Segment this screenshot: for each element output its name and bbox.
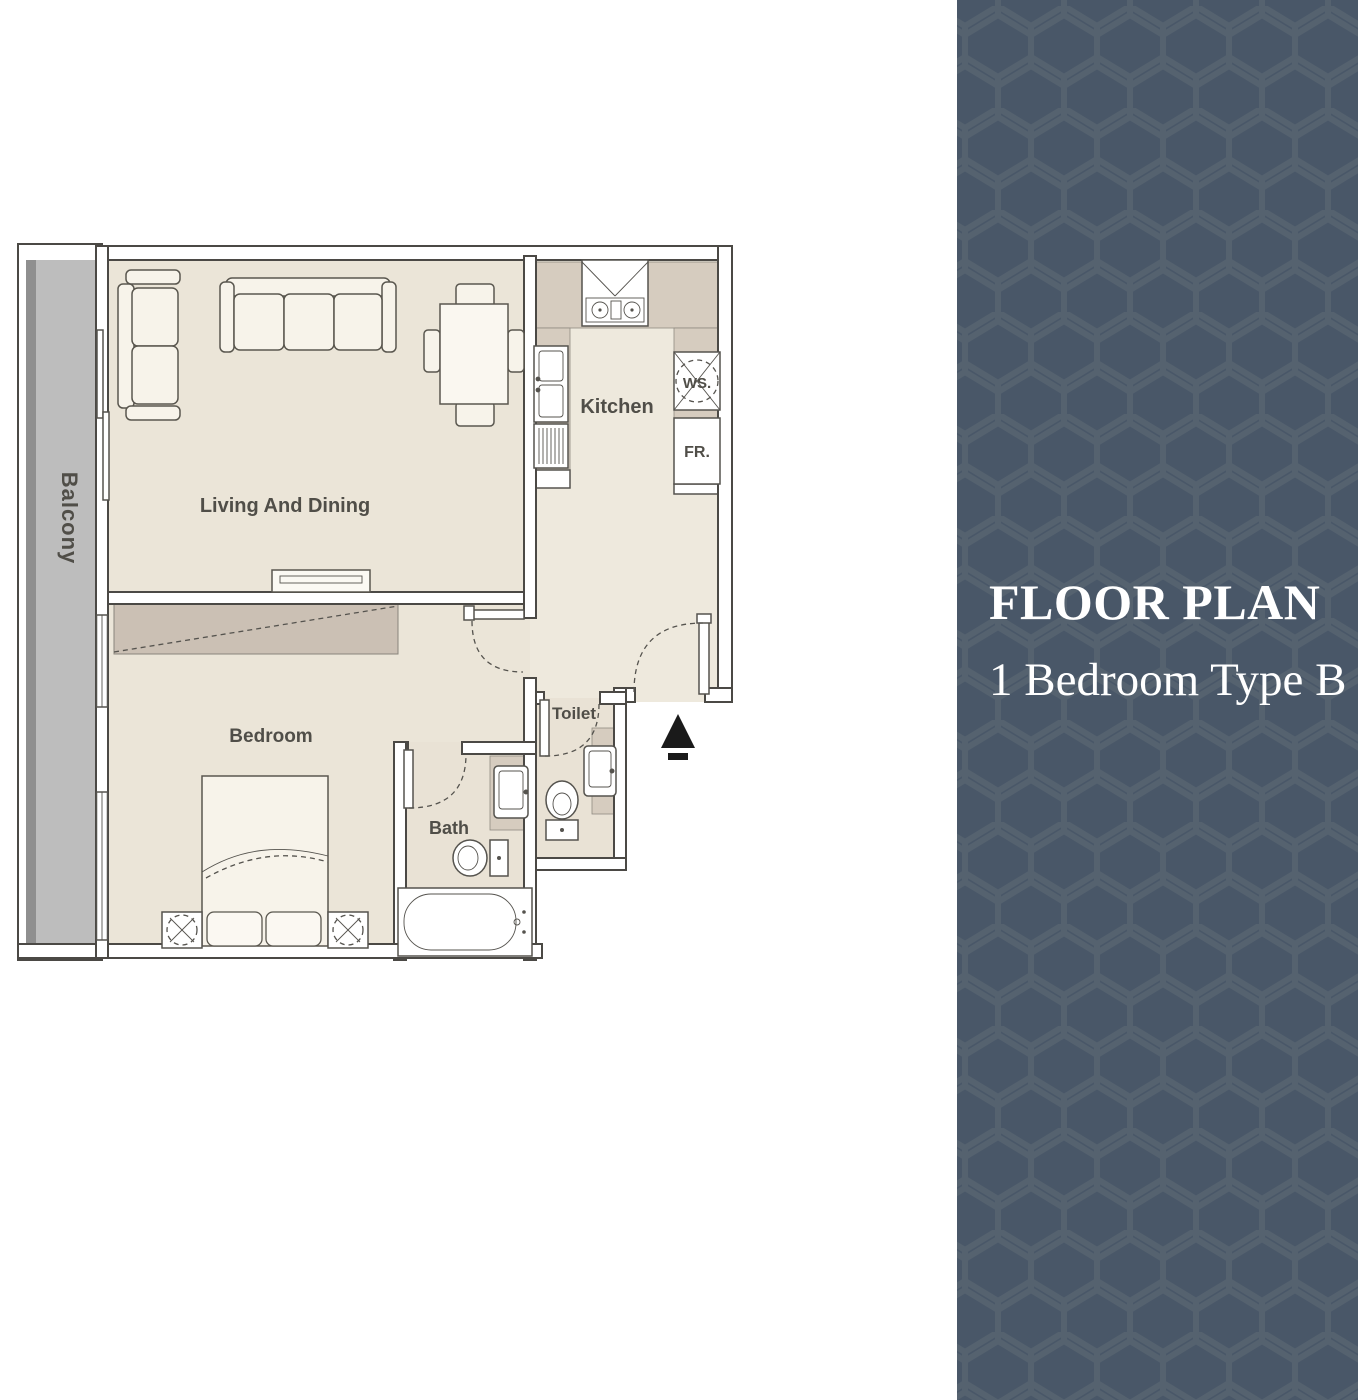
side-panel: FLOOR PLAN 1 Bedroom Type B: [957, 0, 1358, 1400]
sliding-door-panel: [103, 412, 109, 500]
floor-plan: WS. FR.: [0, 0, 957, 1400]
washing-machine: WS.: [674, 352, 720, 410]
washing-machine-label: WS.: [683, 375, 711, 392]
sofa-three-seat: [220, 278, 396, 352]
nightstand-lamp-left: [162, 912, 202, 948]
kitchen-stove: [582, 260, 648, 326]
toilet-wc: [546, 781, 578, 840]
page: WS. FR.: [0, 0, 1358, 1400]
bath-label: Bath: [429, 818, 469, 838]
wardrobe: [114, 604, 398, 654]
bath-toilet: [453, 840, 508, 876]
tv-console: [272, 570, 370, 592]
double-bed: [202, 776, 328, 946]
loveseat: [118, 270, 180, 420]
fridge: FR.: [674, 418, 720, 484]
bathtub: [398, 888, 532, 956]
bedroom-label: Bedroom: [229, 726, 312, 747]
kitchen-label: Kitchen: [580, 396, 653, 418]
nightstand-lamp-right: [328, 912, 368, 948]
sliding-door-panel: [97, 330, 103, 418]
kitchen-sink: [534, 346, 568, 422]
panel-title: FLOOR PLAN: [989, 576, 1349, 629]
entrance-marker: [661, 714, 695, 760]
panel-subtitle: 1 Bedroom Type B: [989, 656, 1358, 705]
living-dining-label: Living And Dining: [200, 495, 370, 517]
toilet-label: Toilet: [552, 704, 596, 723]
balcony-label: Balcony: [57, 472, 82, 565]
dish-rack: [534, 424, 568, 468]
toilet-sink: [584, 746, 616, 796]
balcony: [18, 244, 102, 960]
bath-sink: [494, 766, 529, 818]
fridge-label: FR.: [684, 444, 710, 461]
